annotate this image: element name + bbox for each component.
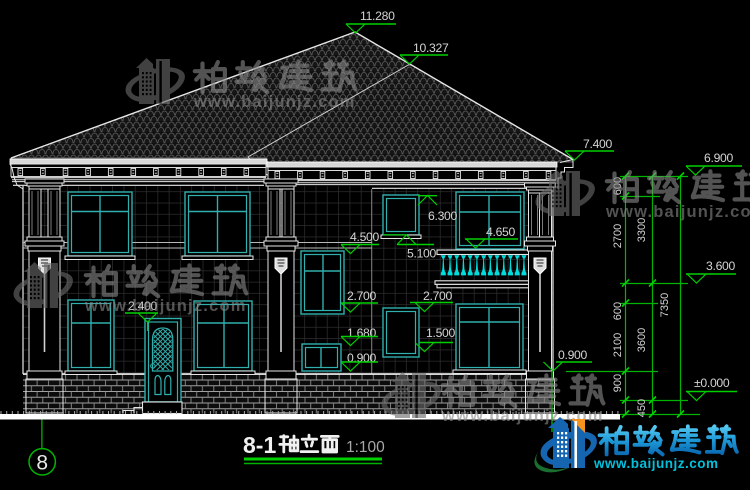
svg-text:900: 900 xyxy=(612,374,624,392)
svg-text:www.baijunjz.com: www.baijunjz.com xyxy=(84,297,247,315)
svg-text:4.500: 4.500 xyxy=(350,230,380,244)
svg-text:600: 600 xyxy=(612,302,624,320)
svg-text:0.900: 0.900 xyxy=(558,348,588,362)
svg-text:2.700: 2.700 xyxy=(347,289,377,303)
svg-text:450: 450 xyxy=(636,399,648,417)
svg-text:7.400: 7.400 xyxy=(583,137,613,151)
svg-text:3300: 3300 xyxy=(636,218,648,242)
svg-text:2700: 2700 xyxy=(612,224,624,248)
svg-text:1.680: 1.680 xyxy=(347,326,377,340)
svg-text:3.600: 3.600 xyxy=(706,259,736,273)
svg-text:6.900: 6.900 xyxy=(704,151,734,165)
svg-text:5.100: 5.100 xyxy=(407,247,437,261)
svg-text:11.280: 11.280 xyxy=(360,9,395,23)
svg-text:8: 8 xyxy=(36,452,48,475)
svg-text:2100: 2100 xyxy=(612,333,624,357)
svg-text:8-1: 8-1 xyxy=(243,432,276,458)
svg-text:www.baijunjz.com: www.baijunjz.com xyxy=(193,93,356,111)
svg-text:10.327: 10.327 xyxy=(413,41,449,55)
svg-text:www.baijunjz.com: www.baijunjz.com xyxy=(605,203,750,221)
svg-text:6.300: 6.300 xyxy=(428,209,458,223)
svg-text:www.baijunjz.com: www.baijunjz.com xyxy=(593,456,719,471)
svg-text:1.500: 1.500 xyxy=(426,326,456,340)
svg-text:3600: 3600 xyxy=(636,328,648,352)
svg-text:1:100: 1:100 xyxy=(346,439,385,456)
svg-text:0.900: 0.900 xyxy=(347,351,377,365)
svg-text:7350: 7350 xyxy=(659,293,671,317)
svg-text:±0.000: ±0.000 xyxy=(694,376,730,390)
svg-text:2.700: 2.700 xyxy=(423,289,453,303)
svg-text:4.650: 4.650 xyxy=(486,225,516,239)
